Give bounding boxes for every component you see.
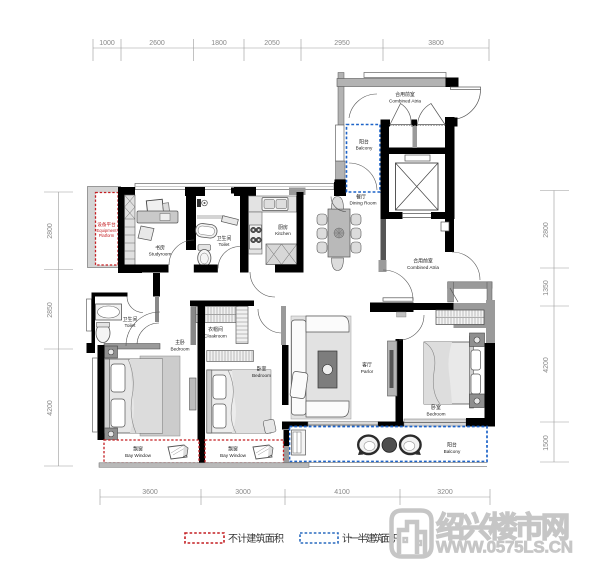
svg-text:1500: 1500 (543, 435, 550, 451)
svg-text:2950: 2950 (334, 40, 350, 47)
svg-text:2800: 2800 (47, 223, 54, 239)
svg-text:卧室: 卧室 (431, 404, 441, 411)
svg-text:合用前室: 合用前室 (395, 91, 415, 98)
svg-text:Bay Window: Bay Window (220, 453, 247, 458)
svg-text:不计建筑面积: 不计建筑面积 (228, 532, 284, 545)
svg-text:Combined Atria: Combined Atria (389, 99, 421, 104)
svg-text:Balcony: Balcony (356, 146, 373, 151)
svg-text:Bay Window: Bay Window (125, 453, 152, 458)
svg-text:2850: 2850 (47, 302, 54, 318)
svg-text:WWW.0575LS.CN: WWW.0575LS.CN (436, 538, 573, 557)
svg-text:Parlor: Parlor (361, 369, 374, 374)
svg-text:Bedroom: Bedroom (252, 373, 271, 378)
svg-text:飘窗: 飘窗 (228, 446, 238, 453)
svg-text:卧室: 卧室 (257, 366, 267, 373)
svg-text:Toilet: Toilet (219, 242, 231, 247)
svg-text:厨房: 厨房 (278, 224, 288, 231)
svg-text:3000: 3000 (235, 489, 251, 496)
svg-text:Platform: Platform (99, 233, 115, 238)
svg-text:主卧: 主卧 (175, 339, 185, 346)
svg-text:4100: 4100 (334, 489, 350, 496)
svg-text:合用前室: 合用前室 (413, 258, 433, 265)
svg-text:设备平台: 设备平台 (97, 221, 116, 228)
svg-text:Cloakroom: Cloakroom (204, 333, 227, 338)
svg-text:Studyroom: Studyroom (149, 252, 172, 257)
svg-text:4200: 4200 (47, 400, 54, 416)
svg-text:客厅: 客厅 (362, 362, 372, 369)
svg-text:3800: 3800 (428, 40, 444, 47)
svg-text:2050: 2050 (264, 40, 280, 47)
svg-text:3200: 3200 (437, 489, 453, 496)
svg-text:阳台: 阳台 (447, 442, 457, 449)
svg-text:2800: 2800 (543, 222, 550, 238)
svg-text:Kitchen: Kitchen (275, 231, 291, 236)
svg-text:1350: 1350 (543, 280, 550, 296)
svg-text:1800: 1800 (211, 40, 227, 47)
svg-text:Bedroom: Bedroom (170, 347, 189, 352)
svg-text:Bedroom: Bedroom (426, 412, 445, 417)
svg-text:衣帽间: 衣帽间 (208, 326, 223, 333)
svg-text:餐厅: 餐厅 (356, 194, 366, 201)
svg-text:3600: 3600 (142, 489, 158, 496)
svg-text:Balcony: Balcony (444, 449, 461, 454)
svg-text:1000: 1000 (99, 40, 115, 47)
svg-text:书房: 书房 (155, 245, 165, 252)
svg-text:Combined Atria: Combined Atria (407, 265, 439, 270)
svg-text:卫生间: 卫生间 (123, 316, 138, 323)
svg-text:4200: 4200 (543, 357, 550, 373)
svg-text:飘窗: 飘窗 (133, 446, 143, 453)
svg-text:Dining Room: Dining Room (349, 201, 376, 206)
svg-text:阳台: 阳台 (359, 139, 369, 146)
svg-text:2600: 2600 (149, 40, 165, 47)
